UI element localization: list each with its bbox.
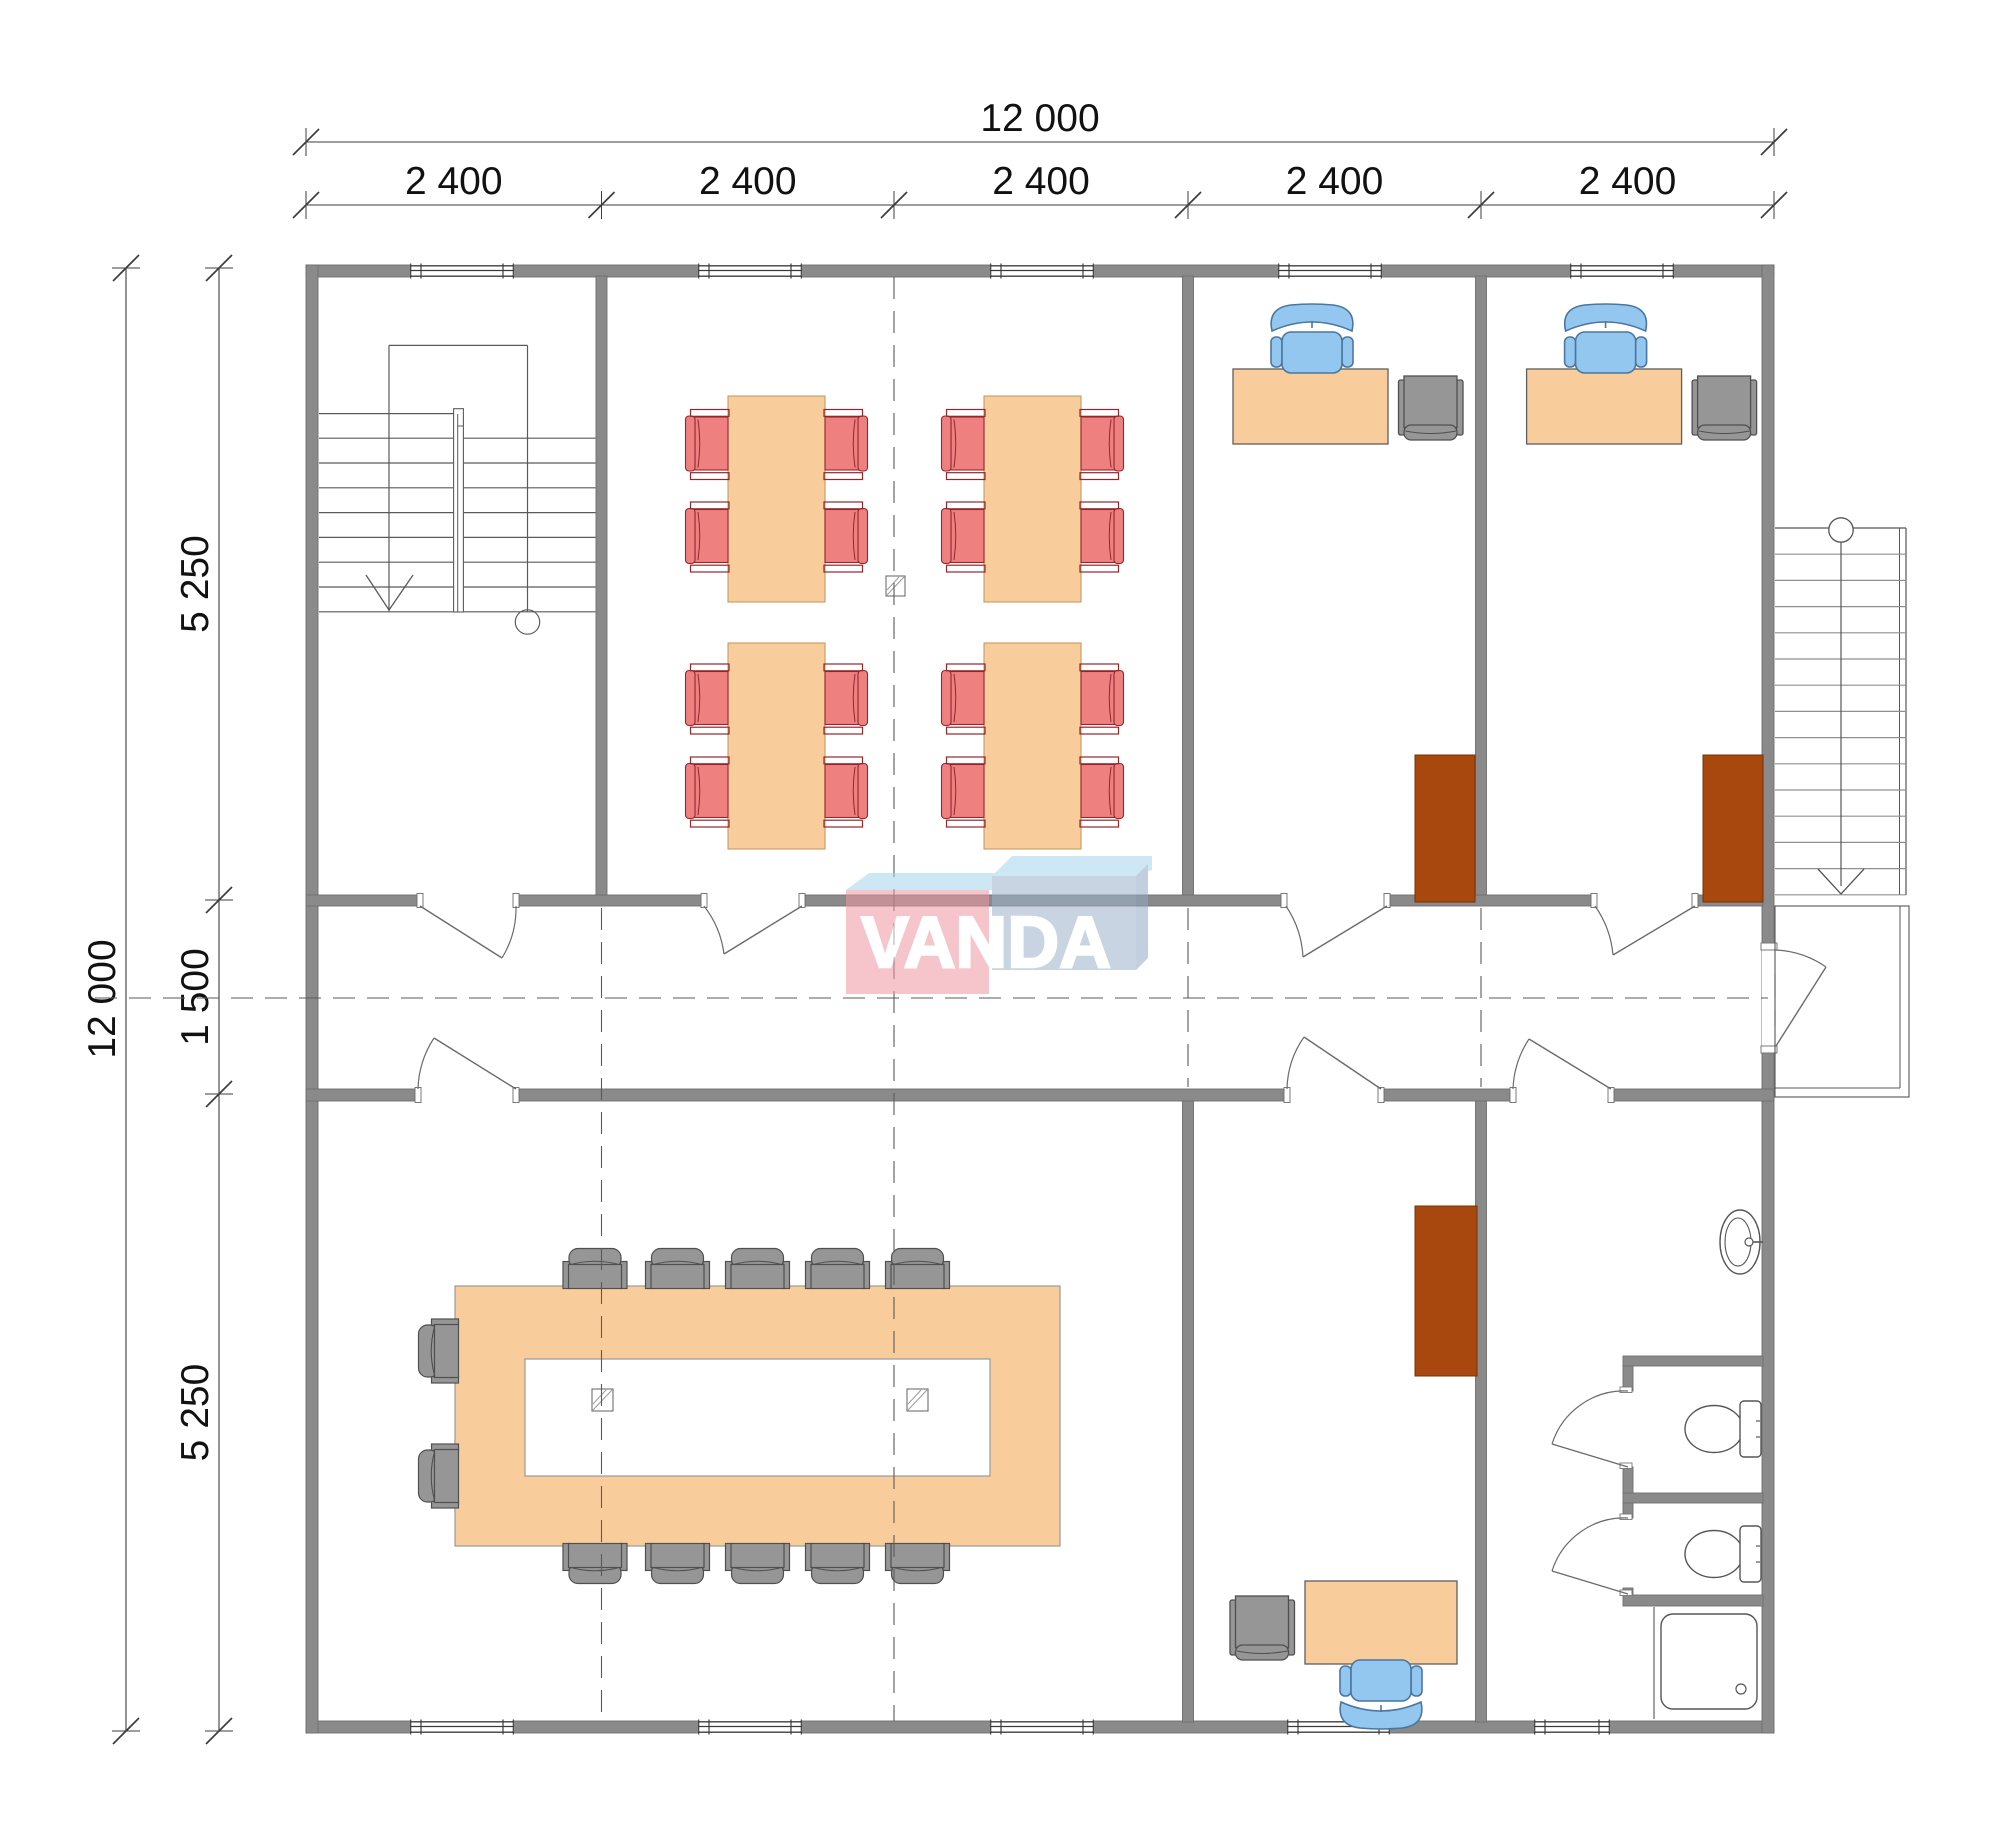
svg-text:12 000: 12 000 xyxy=(81,939,124,1058)
svg-text:12 000: 12 000 xyxy=(980,97,1099,140)
svg-text:5 250: 5 250 xyxy=(174,1364,217,1462)
svg-text:2 400: 2 400 xyxy=(1579,160,1677,203)
svg-text:VANDA: VANDA xyxy=(861,903,1111,983)
svg-text:2 400: 2 400 xyxy=(992,160,1090,203)
svg-text:2 400: 2 400 xyxy=(405,160,503,203)
svg-text:5 250: 5 250 xyxy=(174,535,217,633)
svg-text:1 500: 1 500 xyxy=(174,948,217,1046)
svg-text:2 400: 2 400 xyxy=(699,160,797,203)
svg-text:2 400: 2 400 xyxy=(1286,160,1384,203)
